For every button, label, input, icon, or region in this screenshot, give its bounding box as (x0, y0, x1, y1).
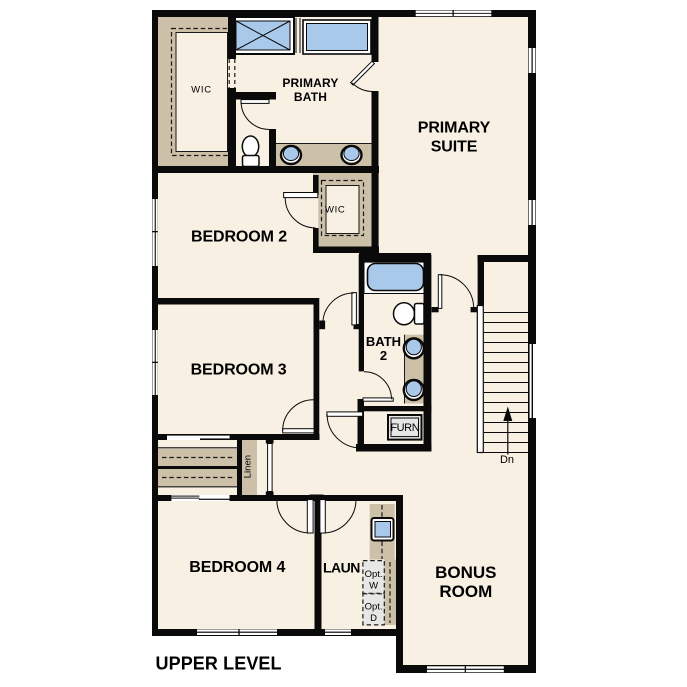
svg-text:Linen: Linen (243, 455, 254, 478)
svg-text:BATH: BATH (294, 90, 327, 104)
svg-text:WIC: WIC (325, 205, 345, 216)
svg-text:BEDROOM 3: BEDROOM 3 (191, 362, 287, 379)
svg-text:Opt.: Opt. (365, 602, 383, 613)
svg-text:WIC: WIC (191, 85, 212, 96)
svg-text:BEDROOM 4: BEDROOM 4 (189, 559, 285, 576)
svg-text:2: 2 (380, 348, 387, 363)
svg-text:BONUS: BONUS (435, 563, 496, 582)
svg-text:BATH: BATH (366, 334, 401, 349)
svg-text:SUITE: SUITE (431, 139, 478, 156)
svg-text:UPPER LEVEL: UPPER LEVEL (156, 654, 282, 674)
svg-text:FURN: FURN (390, 422, 419, 434)
svg-text:BEDROOM 2: BEDROOM 2 (191, 229, 287, 246)
svg-text:Dn: Dn (500, 454, 514, 466)
svg-text:ROOM: ROOM (439, 582, 492, 601)
svg-text:PRIMARY: PRIMARY (282, 76, 338, 90)
svg-text:Opt.: Opt. (365, 569, 383, 580)
svg-text:W: W (369, 581, 378, 592)
svg-text:D: D (370, 613, 377, 624)
svg-text:LAUN: LAUN (323, 559, 360, 575)
svg-text:PRIMARY: PRIMARY (418, 119, 491, 136)
